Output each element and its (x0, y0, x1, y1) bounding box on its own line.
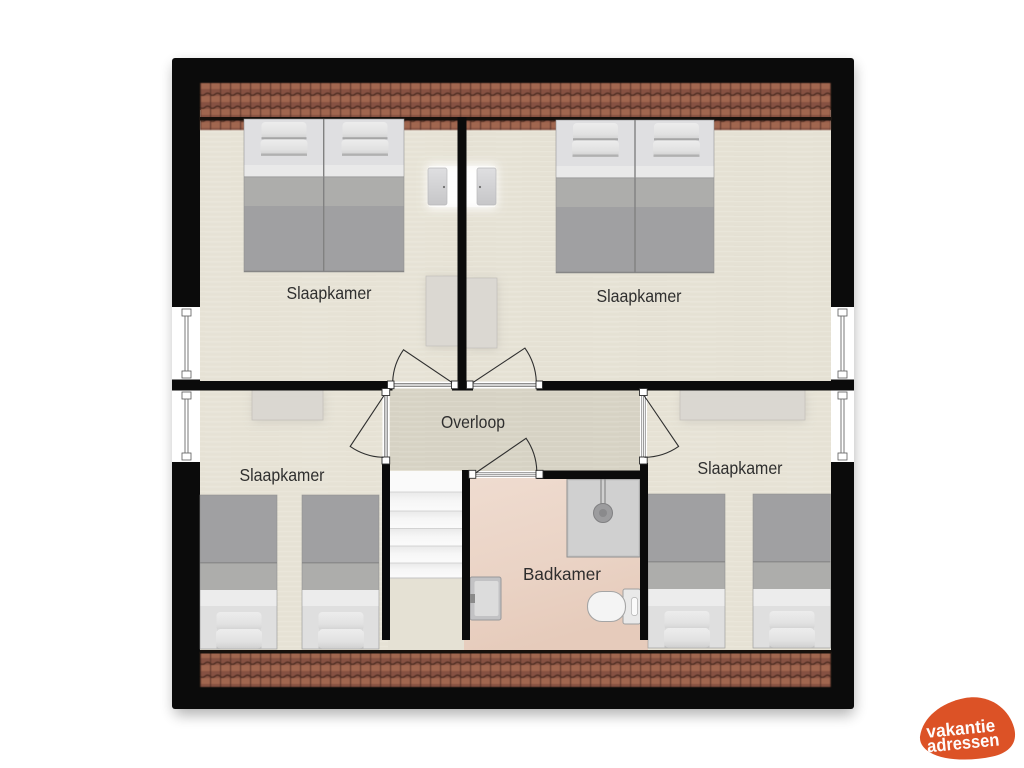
svg-text:Slaapkamer: Slaapkamer (287, 283, 372, 303)
svg-text:Slaapkamer: Slaapkamer (597, 286, 682, 306)
svg-text:Slaapkamer: Slaapkamer (698, 458, 783, 478)
svg-text:Slaapkamer: Slaapkamer (240, 465, 325, 485)
svg-text:Badkamer: Badkamer (523, 564, 601, 584)
svg-text:Overloop: Overloop (441, 412, 505, 432)
